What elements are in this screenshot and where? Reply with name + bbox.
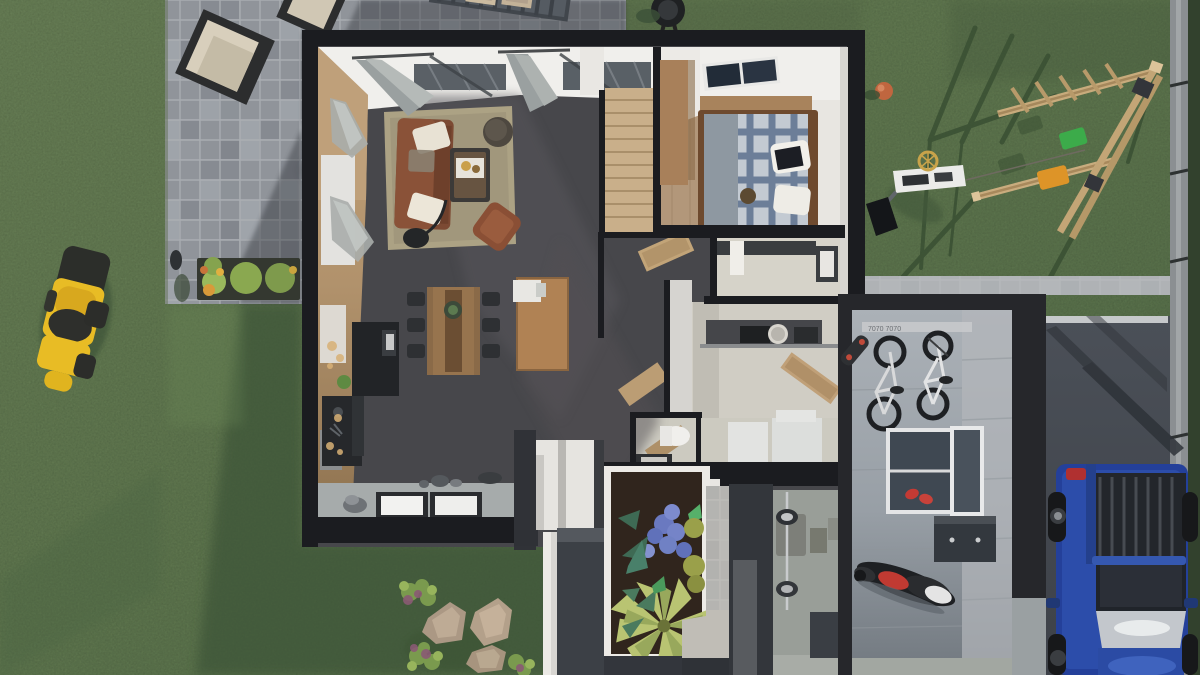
svg-text:7070 7070: 7070 7070 xyxy=(868,326,901,333)
